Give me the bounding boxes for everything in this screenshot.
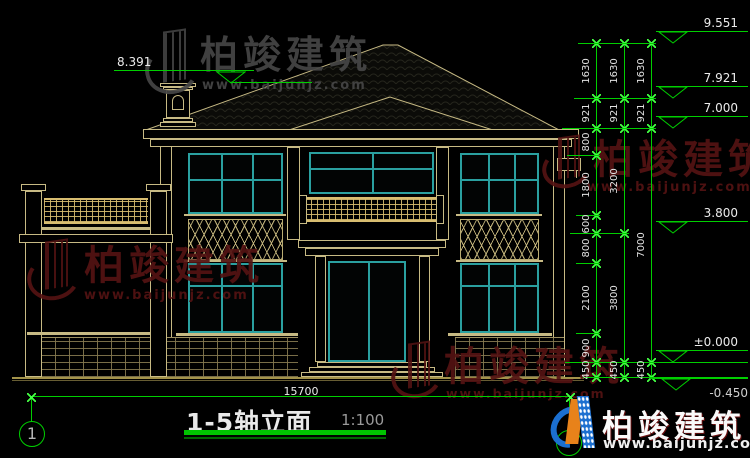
window-sill-2f-right <box>456 214 542 216</box>
dim-tick <box>27 393 36 402</box>
elevation-label: 7.000 <box>648 101 738 115</box>
elevation-triangle-icon <box>658 350 688 363</box>
dim-extension-line <box>570 233 629 234</box>
title-underline-2 <box>184 437 386 439</box>
elevation-label: 3.800 <box>648 206 738 220</box>
fret-post-right <box>436 195 444 224</box>
watermark-right: 柏竣建筑 www.baijunjz.com <box>545 134 750 196</box>
window-2f-right-mullion <box>514 155 516 212</box>
window-2f-right <box>460 153 539 214</box>
window-2f-center-transom <box>311 168 432 170</box>
elevation-triangle-icon <box>658 86 688 99</box>
building-logo-icon <box>394 342 438 398</box>
drawing-scale: 1:100 <box>341 411 384 429</box>
brick-base-wall <box>27 337 151 377</box>
dim-label: 1630 <box>581 53 593 89</box>
dim-label: 1630 <box>609 53 621 89</box>
elevation-chimney-label: 8.391 <box>117 55 151 69</box>
dim-label: 3200 <box>609 163 621 199</box>
door-canopy-band <box>298 240 446 248</box>
dim-extension-line <box>578 43 656 44</box>
window-2f-center-mullion <box>372 154 374 192</box>
footer-url: www.baijunjz.com <box>603 436 750 452</box>
window-sill-1f-right <box>448 333 552 336</box>
dim-label: 921 <box>609 95 621 131</box>
overall-dim-label: 15700 <box>270 385 332 398</box>
courtyard-sill <box>27 332 151 335</box>
dim-label: 921 <box>636 95 648 131</box>
chimney-base-2 <box>160 122 196 127</box>
courtyard-pillar-cap-left <box>21 184 46 191</box>
watermark-left: 柏竣建筑 www.baijunjz.com <box>30 238 260 302</box>
dim-label: 2100 <box>581 280 593 316</box>
dim-label: 800 <box>581 124 593 160</box>
title-underline <box>184 430 386 435</box>
courtyard-fret-screen <box>44 198 148 224</box>
door-pilaster-left <box>315 256 326 362</box>
window-sill-2f-left <box>184 214 286 216</box>
railing-lattice-right <box>460 219 539 260</box>
baijun-building-logo-icon <box>552 396 600 456</box>
window-1f-right-mullion <box>488 265 490 331</box>
cad-elevation-drawing: 柏竣建筑 www.baijunjz.com 柏竣建筑 www.baijunjz.… <box>0 0 750 458</box>
building-logo-icon <box>148 30 194 94</box>
window-2f-center <box>309 152 434 194</box>
eave-fascia <box>143 129 579 139</box>
dim-label: 450 <box>609 352 621 388</box>
balcony-pilaster-right <box>436 147 449 240</box>
window-2f-right-mullion <box>488 155 490 212</box>
courtyard-pillar-cap-right <box>146 184 171 191</box>
elevation-triangle-icon <box>661 378 691 391</box>
watermark-brand: 柏竣建筑 <box>84 246 264 286</box>
eave-fascia-lower <box>150 139 572 147</box>
window-2f-left-transom <box>190 179 281 181</box>
balcony-fret-railing <box>305 197 438 222</box>
window-2f-left-mullion <box>252 155 254 212</box>
dim-label: 800 <box>581 230 593 266</box>
window-2f-left <box>188 153 283 214</box>
axis-bubble-1: 1 <box>19 421 45 447</box>
elevation-triangle-icon <box>658 116 688 129</box>
elevation-chimney-leader <box>230 82 312 83</box>
dim-label: 450 <box>581 352 593 388</box>
window-1f-right-transom <box>462 285 537 287</box>
dim-label: 3800 <box>609 280 621 316</box>
railing-base-right <box>456 260 543 262</box>
balcony-pilaster-left <box>287 147 300 240</box>
elevation-label: 7.921 <box>648 71 738 85</box>
door-canopy-band-2 <box>305 248 439 256</box>
window-sill-1f-left <box>176 333 298 336</box>
axis-bubble-1-label: 1 <box>27 424 37 443</box>
elevation-label: 9.551 <box>648 16 738 30</box>
elevation-triangle-icon <box>658 31 688 44</box>
building-logo-icon <box>30 240 76 300</box>
window-1f-right-mullion <box>514 265 516 331</box>
courtyard-rail <box>42 227 150 230</box>
dim-label: 1800 <box>581 167 593 203</box>
dim-label: 450 <box>636 352 648 388</box>
elevation-label: ±0.000 <box>648 335 738 349</box>
window-2f-right-transom <box>462 179 537 181</box>
entry-door-mullion <box>368 263 370 360</box>
elevation-triangle-icon <box>658 221 688 234</box>
dim-label: 1630 <box>636 53 648 89</box>
elevation-label: -0.450 <box>690 386 748 400</box>
watermark-brand: 柏竣建筑 <box>200 36 372 74</box>
watermark-top: 柏竣建筑 www.baijunjz.com <box>148 28 388 98</box>
window-1f-right <box>460 263 539 333</box>
watermark-url: www.baijunjz.com <box>84 288 249 303</box>
dim-label: 7000 <box>636 227 648 263</box>
brick-base-left <box>161 337 298 377</box>
window-2f-left-mullion <box>221 155 223 212</box>
fret-post-left <box>299 195 307 224</box>
